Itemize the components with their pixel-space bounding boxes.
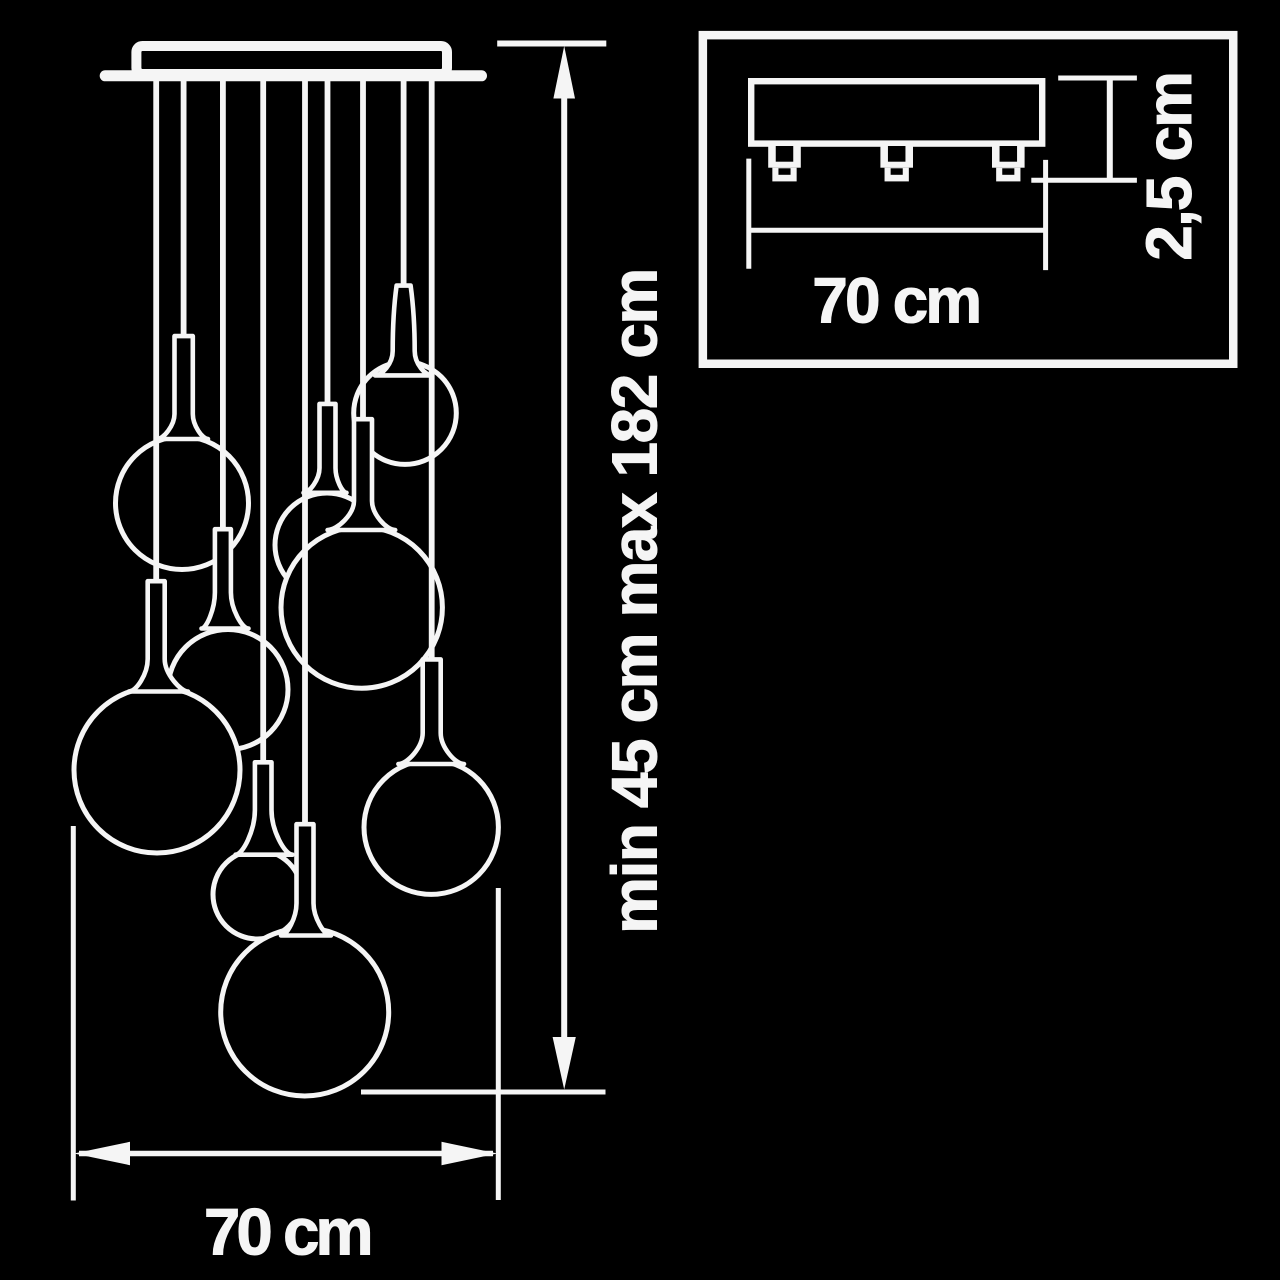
svg-text:min 45 cm max 182 cm: min 45 cm max 182 cm (598, 269, 670, 934)
svg-text:70 cm: 70 cm (812, 265, 979, 337)
svg-text:2,5 cm: 2,5 cm (1133, 73, 1205, 261)
svg-text:70 cm: 70 cm (204, 1195, 370, 1268)
